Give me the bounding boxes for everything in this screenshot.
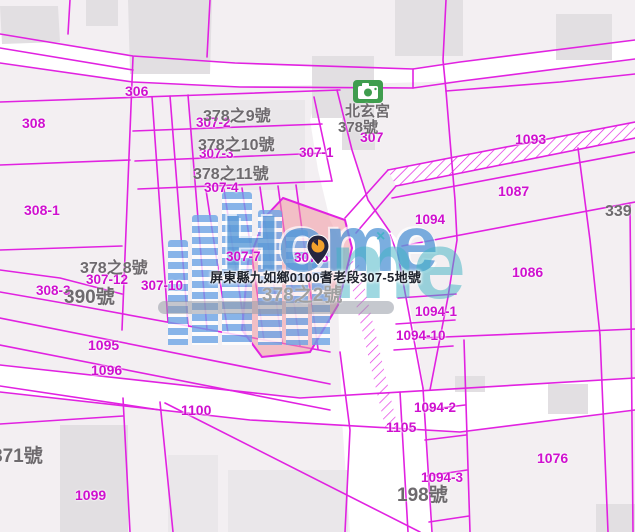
address-label: 378號 [338, 120, 378, 135]
parcel-number-label: 308-1 [24, 203, 60, 217]
address-label: 378之8號 [80, 261, 148, 277]
parcel-number-label: 1094-10 [396, 329, 446, 343]
address-label: 378之11號 [193, 167, 269, 183]
address-label: 378之10號 [198, 138, 275, 154]
parcel-number-label: 1087 [498, 184, 529, 198]
parcel-number-label: 1099 [75, 488, 106, 502]
parcel-number-label: 1093 [515, 132, 546, 146]
parcel-number-label: 307-1 [299, 146, 334, 160]
parcel-number-label: 1100 [181, 403, 211, 417]
address-label: 390號 [64, 288, 115, 307]
parcel-number-label: 1094-1 [415, 305, 457, 319]
parcel-number-label: 308 [22, 116, 45, 130]
address-label: 北玄宮 [345, 104, 390, 119]
map-canvas[interactable]: Home me × 屏東縣九如鄉0100耆老段307-5地號 306308307… [0, 0, 635, 532]
address-label: 378之9號 [203, 109, 271, 125]
hatched-road-fill [388, 122, 635, 186]
parcel-number-label: 1095 [88, 338, 119, 352]
parcel-number-label: 307-4 [204, 181, 239, 195]
parcel-number-label: 1105 [386, 420, 416, 434]
address-label: 871號 [0, 447, 43, 466]
parcel-number-label: 1086 [512, 265, 543, 279]
parcel-number-label: 1096 [91, 363, 122, 377]
parcel-number-label: 307-10 [141, 279, 183, 293]
parcel-number-label: 1094-2 [414, 401, 456, 415]
address-label: 198號 [397, 486, 448, 505]
parcel-number-label: 1076 [537, 451, 568, 465]
parcel-number-label: 1094-3 [421, 471, 463, 485]
address-label: 339 [605, 204, 632, 220]
camera-icon[interactable] [353, 80, 383, 103]
parcel-number-label: 306 [125, 84, 148, 98]
parcel-tooltip: 屏東縣九如鄉0100耆老段307-5地號 [210, 267, 421, 286]
address-label: 378之2號 [262, 286, 342, 305]
location-pin-icon[interactable] [306, 234, 330, 266]
parcel-number-label: 307-7 [226, 250, 261, 264]
parcel-number-label: 1094 [415, 213, 445, 227]
